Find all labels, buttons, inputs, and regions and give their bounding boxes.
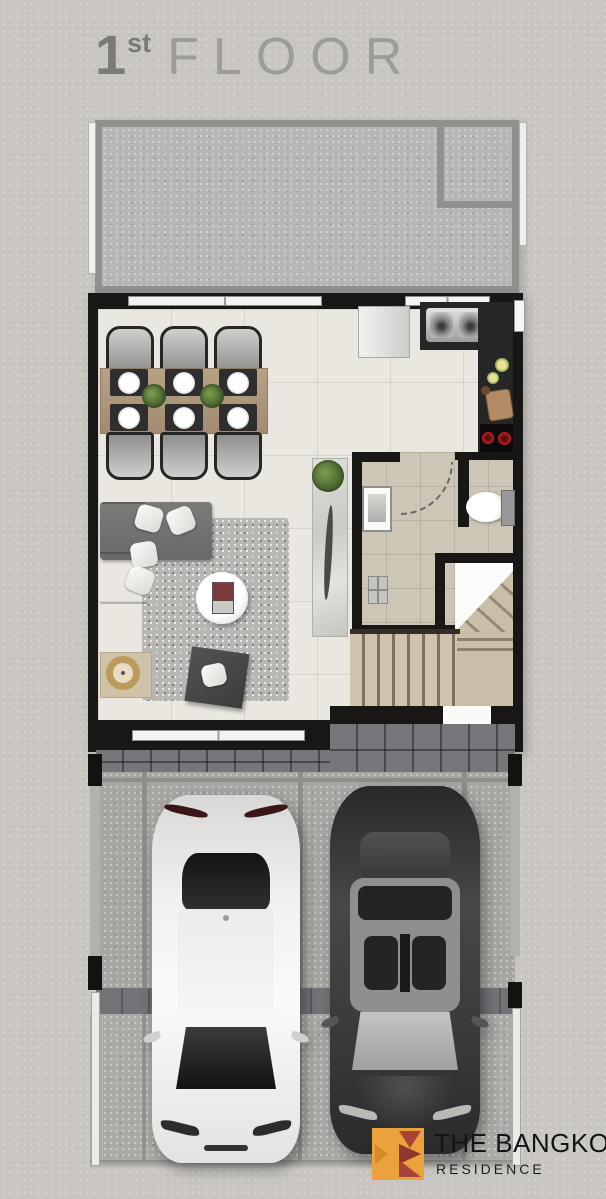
throw-pillow	[129, 540, 159, 569]
brand-logo: THE BANGKOK RESIDENCE	[372, 1128, 606, 1180]
kitchen-side-window	[514, 300, 525, 332]
place-setting	[110, 404, 148, 431]
avocado-icon	[487, 372, 499, 384]
center-console-icon	[400, 934, 410, 992]
toilet-tank-icon	[501, 490, 515, 526]
windshield-icon	[176, 1027, 276, 1089]
dining-chair	[214, 326, 262, 374]
living-sliding-door	[132, 730, 305, 741]
refrigerator	[358, 306, 410, 358]
grille-icon	[204, 1145, 248, 1151]
food-item-icon	[481, 386, 490, 395]
plate-icon	[118, 372, 140, 394]
stair-wall	[445, 553, 513, 563]
sink-basin-left-icon	[430, 312, 453, 338]
brand-text: THE BANGKOK RESIDENCE	[434, 1128, 606, 1177]
avocado-icon	[495, 358, 509, 372]
dining-chair	[106, 326, 154, 374]
title-floor-ordinal: st	[127, 28, 151, 58]
washbasin	[362, 486, 392, 532]
magazine-icon	[212, 582, 234, 614]
rear-seat-icon	[358, 886, 452, 920]
fence-right	[510, 786, 520, 956]
table-plant-icon	[142, 384, 166, 408]
plate-icon	[227, 407, 249, 429]
double-sink	[426, 308, 486, 342]
dining-chair	[160, 432, 208, 480]
shower-drain	[368, 576, 388, 604]
toilet	[466, 492, 506, 522]
fence-post	[88, 956, 102, 990]
plate-icon	[173, 407, 195, 429]
rear-deck-icon	[360, 832, 450, 878]
fence-post	[88, 754, 102, 786]
place-setting	[165, 404, 203, 431]
brand-subtitle: RESIDENCE	[436, 1161, 606, 1177]
terrace-rail-left	[88, 122, 96, 274]
dining-chair	[106, 432, 154, 480]
entry-door-opening	[443, 706, 491, 724]
garage-tiles-right	[330, 724, 515, 772]
place-setting	[165, 369, 203, 396]
place-setting	[219, 404, 257, 431]
white-car	[152, 795, 300, 1163]
pouf-button-icon	[121, 671, 125, 675]
bathroom-wall	[352, 452, 362, 635]
stair-landing	[457, 632, 513, 706]
stair-break	[455, 563, 513, 632]
page-title: 1stFLOOR	[95, 22, 416, 87]
garage-wall	[330, 706, 523, 724]
gate-rail-left	[91, 992, 100, 1166]
front-seat-icon	[412, 936, 446, 990]
stair-handrail	[350, 629, 460, 634]
car-roof-icon	[178, 909, 274, 1029]
dining-chair	[160, 326, 208, 374]
paving-joint	[142, 772, 147, 988]
plate-icon	[173, 372, 195, 394]
brand-name: THE BANGKOK	[434, 1128, 606, 1159]
dining-sliding-window	[128, 296, 322, 306]
table-plant-icon	[200, 384, 224, 408]
brand-logo-mark-icon	[372, 1128, 424, 1180]
floorplan-page: 1stFLOOR	[0, 0, 606, 1199]
bathroom-wall	[458, 452, 469, 527]
burner-icon	[482, 432, 494, 444]
dining-chair	[214, 432, 262, 480]
rear-window-icon	[182, 853, 270, 911]
fence-post	[508, 754, 522, 786]
front-seat-icon	[364, 936, 398, 990]
dark-gray-car	[330, 786, 480, 1154]
cutting-board	[485, 388, 514, 422]
title-floor-word: FLOOR	[167, 28, 416, 86]
stove	[480, 424, 513, 452]
gold-pouf	[106, 656, 140, 690]
title-floor-number: 1	[95, 23, 126, 86]
burner-icon	[498, 432, 511, 445]
basin-bowl-icon	[368, 494, 386, 522]
stair-break-treads-icon	[455, 563, 513, 632]
garage-tiles-left	[96, 750, 330, 772]
plate-icon	[118, 407, 140, 429]
antenna-icon	[223, 915, 229, 921]
stair-wall	[435, 553, 445, 635]
fence-left	[90, 786, 100, 956]
hood-highlight-icon	[356, 1076, 454, 1134]
console-plant-icon	[312, 460, 344, 492]
paving-joint	[96, 778, 515, 782]
plate-icon	[227, 372, 249, 394]
terrace-rail-right	[519, 122, 527, 246]
windshield-icon	[352, 1012, 458, 1070]
terrace-planter-corner	[437, 122, 513, 208]
fence-post	[508, 982, 522, 1008]
stair-treads	[350, 632, 457, 706]
place-setting	[219, 369, 257, 396]
